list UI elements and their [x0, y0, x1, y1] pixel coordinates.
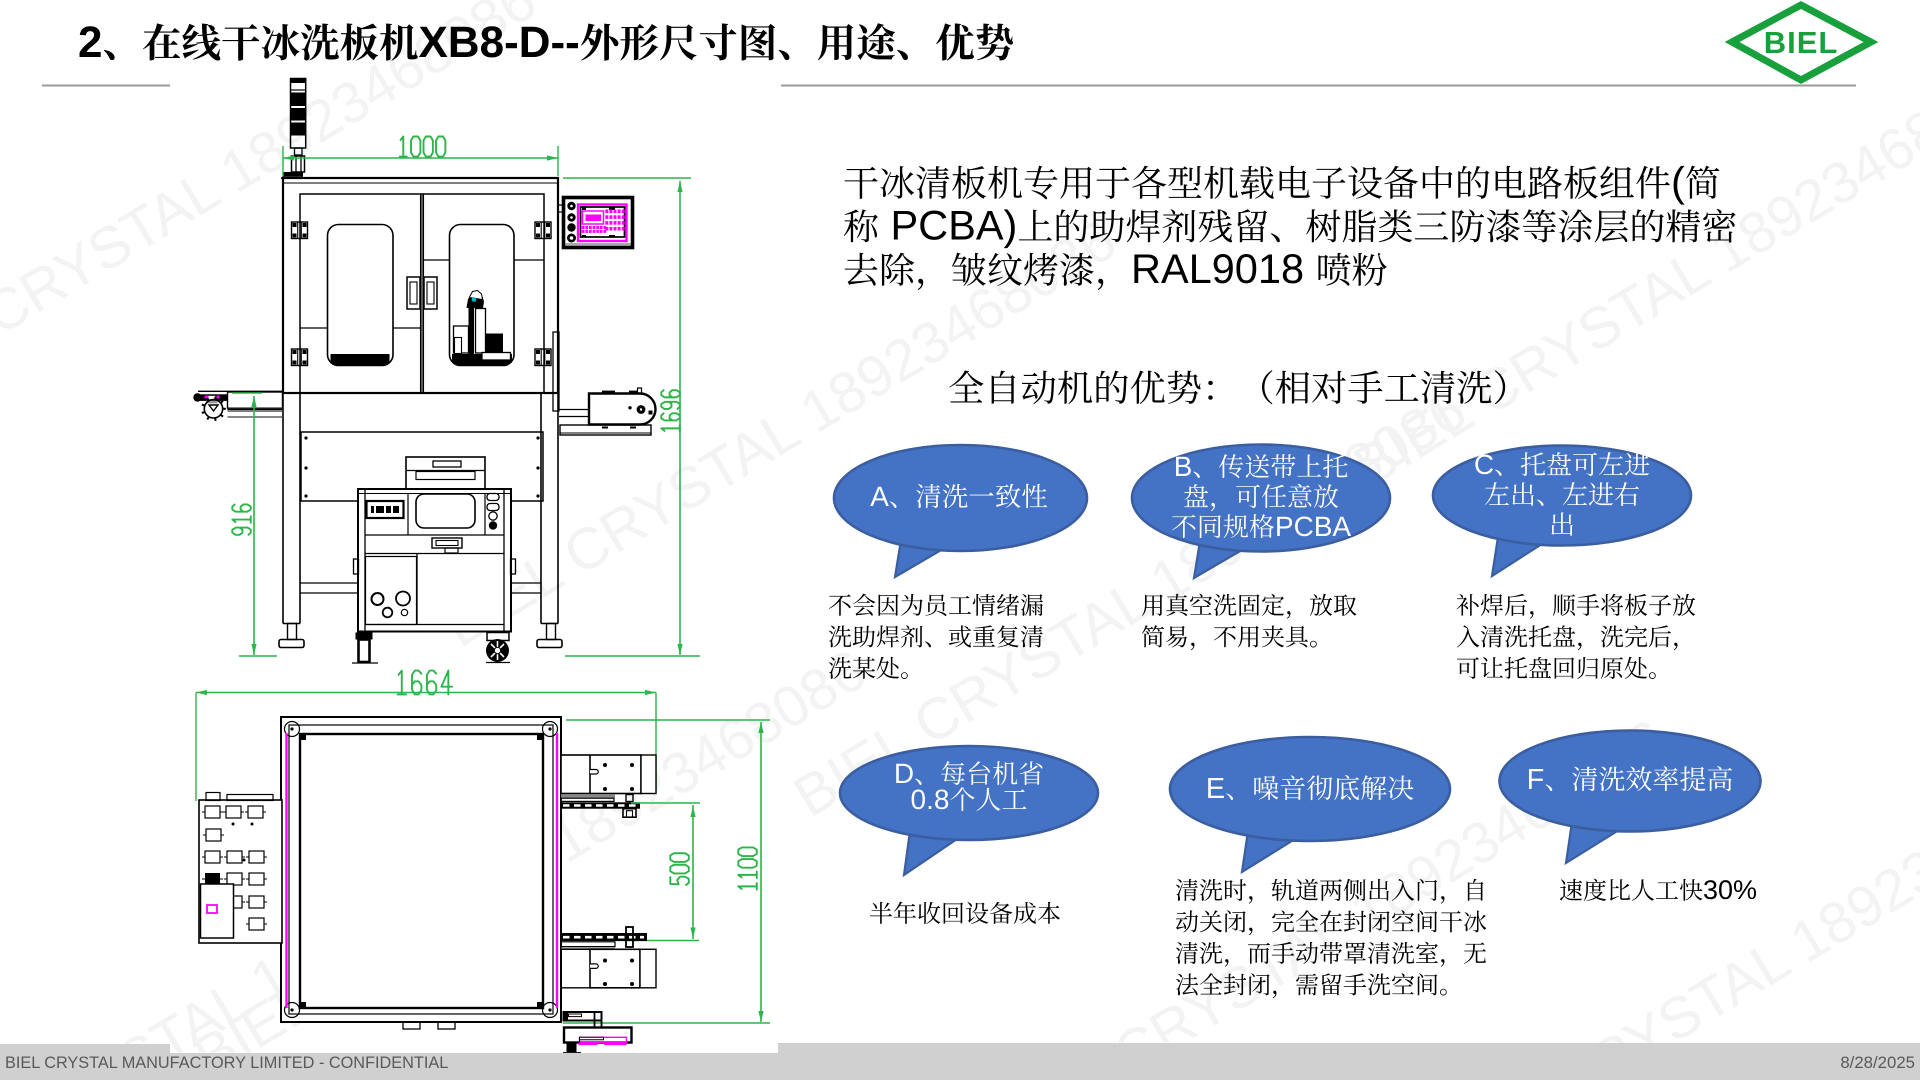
svg-text:BIEL: BIEL: [1764, 25, 1839, 60]
svg-text:8/28/2025: 8/28/2025: [1840, 1053, 1915, 1072]
svg-text:BIEL CRYSTAL MANUFACTORY LIMIT: BIEL CRYSTAL MANUFACTORY LIMITED - CONFI…: [5, 1054, 448, 1072]
